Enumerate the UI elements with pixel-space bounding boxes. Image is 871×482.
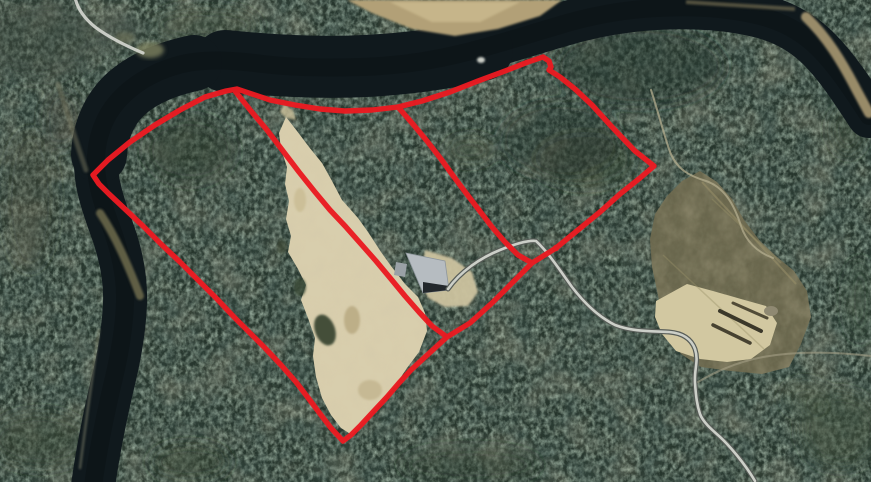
boundary-node (553, 245, 559, 251)
river-rock (477, 57, 485, 63)
satellite-map (0, 0, 871, 482)
screenshot-root (0, 0, 871, 482)
building-annex (394, 262, 407, 277)
